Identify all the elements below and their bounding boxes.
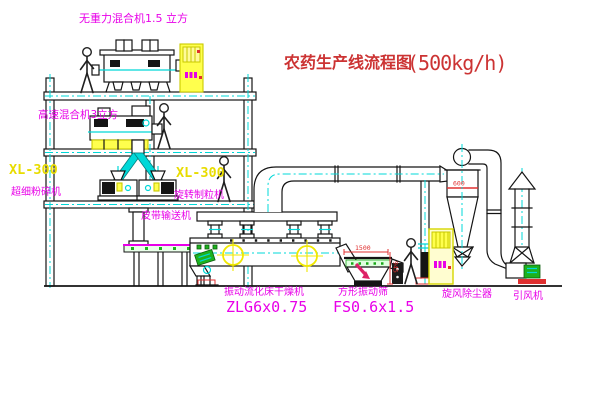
page-title: 农药生产线流程图 [283,53,412,72]
label-cyclone: 旋风除尘器 [442,287,492,300]
process-flow-diagram: 1500 945 600 农药生产线流程图 (500kg/h) 无重力混合机1.… [0,0,600,403]
label-dryer-model: ZLG6x0.75 [226,298,307,316]
label-mill-model: XL-300 [9,162,58,178]
dryer-hood-ports [208,221,332,238]
cad-drawing-canvas: 1500 945 600 农药生产线流程图 (500kg/h) 无重力混合机1.… [0,0,600,403]
granulator-left [98,166,139,200]
control-cabinet-lower [429,229,453,284]
dim-sieve-length: 1500 [355,244,371,252]
label-belt-conveyor: 皮带输送机 [141,209,191,222]
worker-ground [405,239,418,284]
label-dryer-name: 振动流化床干燥机 [224,285,304,298]
title-capacity: (500kg/h) [407,51,506,75]
label-sieve-model: FS0.6x1.5 [333,298,414,316]
granulator-right [137,166,178,200]
gravity-free-mixer [92,40,190,92]
label-mill-name: 超细粉碎机 [11,185,61,198]
label-gravity-mixer: 无重力混合机1.5 立方 [79,11,188,25]
cyclone-separator [445,144,518,271]
exhaust-duct [254,166,448,212]
label-granulator-model: XL-300 [176,165,225,181]
dim-sieve-height: 945 [392,261,400,273]
label-fan: 引风机 [513,289,543,302]
control-cabinet-upper [180,44,203,92]
fluid-bed-dryer [190,212,340,285]
dim-cyclone-diameter: 600 [453,180,465,188]
induced-draft-fan [506,263,546,284]
label-high-speed-mixer: 高速混合机3立方 [38,108,118,121]
label-sieve-name: 方形振动筛 [338,285,388,298]
label-granulator-name: 旋转制粒机 [174,188,224,201]
